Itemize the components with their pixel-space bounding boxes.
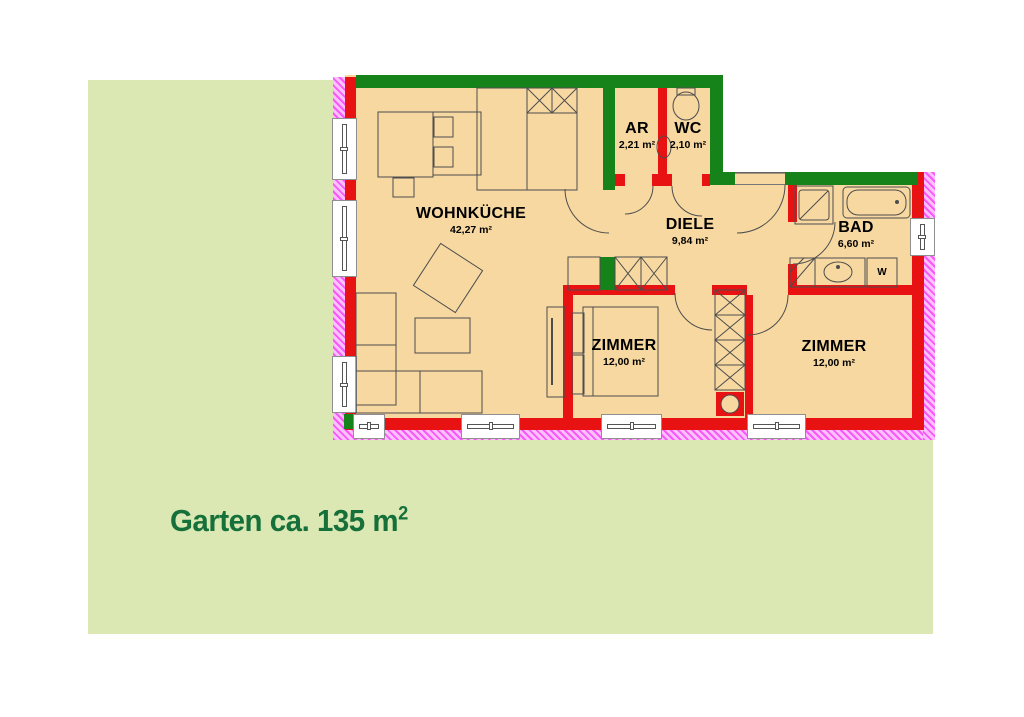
entrance-door-opening bbox=[735, 172, 785, 185]
building-notch-background bbox=[721, 78, 935, 172]
room-name: ZIMMER bbox=[564, 337, 684, 355]
room-area: 9,84 m² bbox=[630, 235, 750, 247]
wall-exterior-right bbox=[912, 172, 924, 430]
garden-caption-sup: 2 bbox=[398, 504, 408, 525]
garden-caption: Garten ca. 135 m2 bbox=[170, 503, 408, 539]
door-opening-ar bbox=[625, 174, 652, 186]
window-bottom-3 bbox=[601, 414, 662, 439]
floor-right-section bbox=[723, 172, 924, 430]
window-left-2 bbox=[332, 200, 357, 277]
window-left-1 bbox=[332, 118, 357, 180]
room-label-wohnkueche: WOHNKÜCHE 42,27 m² bbox=[381, 205, 561, 236]
door-opening-wc bbox=[672, 174, 702, 186]
room-label-zimmer-left: ZIMMER 12,00 m² bbox=[564, 337, 684, 368]
window-glass bbox=[753, 424, 800, 429]
room-name: ZIMMER bbox=[774, 338, 894, 356]
room-label-zimmer-right: ZIMMER 12,00 m² bbox=[774, 338, 894, 369]
room-area: 2,10 m² bbox=[648, 139, 728, 151]
window-bottom-4 bbox=[747, 414, 806, 439]
room-area: 6,60 m² bbox=[806, 238, 906, 250]
room-name: DIELE bbox=[630, 216, 750, 234]
room-name: WOHNKÜCHE bbox=[381, 205, 561, 223]
room-name: BAD bbox=[806, 219, 906, 237]
wall-middle-horizontal bbox=[563, 285, 912, 295]
window-left-3 bbox=[332, 356, 357, 413]
door-opening-zimmer-left bbox=[675, 285, 712, 295]
door-opening-zimmer-right bbox=[747, 285, 788, 295]
wall-top-green bbox=[356, 75, 723, 88]
wall-diele-wardrobe-green bbox=[600, 257, 615, 290]
room-label-bad: BAD 6,60 m² bbox=[806, 219, 906, 250]
window-glass bbox=[920, 224, 925, 250]
wall-wc-right-horizontal bbox=[710, 172, 735, 185]
chimney-block bbox=[716, 392, 744, 416]
door-opening-bad bbox=[788, 222, 797, 264]
wall-shaft-right bbox=[745, 285, 753, 418]
room-area: 12,00 m² bbox=[774, 357, 894, 369]
room-label-wc: WC 2,10 m² bbox=[648, 120, 728, 151]
window-bottom-2 bbox=[461, 414, 520, 439]
washing-machine-label: W bbox=[867, 259, 897, 287]
washing-machine-letter: W bbox=[877, 267, 886, 278]
floor-plan-page: WOHNKÜCHE 42,27 m² AR 2,21 m² WC 2,10 m²… bbox=[0, 0, 1024, 717]
room-area: 42,27 m² bbox=[381, 224, 561, 236]
window-glass bbox=[467, 424, 514, 429]
room-area: 12,00 m² bbox=[564, 356, 684, 368]
window-glass bbox=[359, 424, 379, 429]
window-glass bbox=[607, 424, 656, 429]
window-bottom-1 bbox=[353, 414, 385, 439]
window-glass bbox=[342, 124, 347, 174]
garden-caption-text: Garten ca. 135 m bbox=[170, 503, 398, 538]
wall-bad-top bbox=[785, 172, 918, 185]
room-name: WC bbox=[648, 120, 728, 138]
room-label-diele: DIELE 9,84 m² bbox=[630, 216, 750, 247]
window-right-bad bbox=[910, 218, 935, 256]
window-glass bbox=[342, 362, 347, 407]
insulation-hatch-right bbox=[923, 172, 935, 440]
window-glass bbox=[342, 206, 347, 271]
